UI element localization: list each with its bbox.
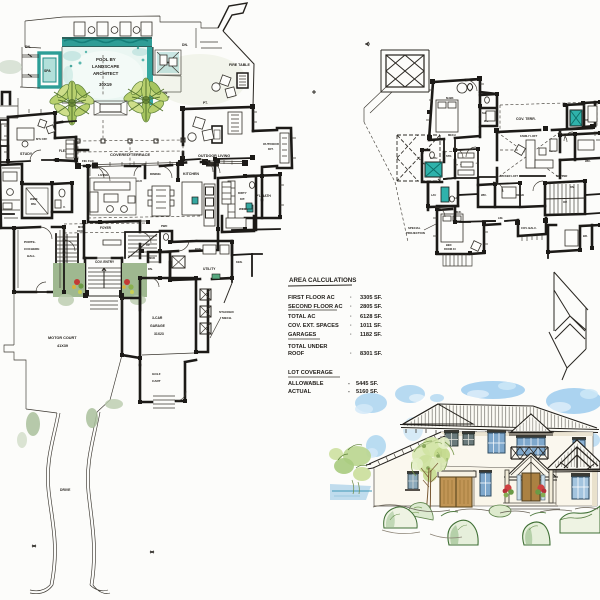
svg-text:1011 SF.: 1011 SF. — [360, 323, 382, 329]
svg-text:PORTE-: PORTE- — [24, 240, 36, 244]
svg-text:AREA CALCULATIONS: AREA CALCULATIONS — [289, 277, 356, 284]
svg-text:COCHERE: COCHERE — [24, 247, 39, 251]
svg-text:KIT.: KIT. — [240, 197, 245, 201]
svg-text:WINE: WINE — [30, 197, 38, 201]
svg-text:OUTDOOR: OUTDOOR — [263, 142, 280, 146]
svg-text:DINING: DINING — [150, 172, 161, 176]
svg-text:MUD: MUD — [78, 225, 84, 229]
svg-text:FAMILY LOFT: FAMILY LOFT — [520, 134, 538, 138]
svg-text:FIN. FLR.: FIN. FLR. — [82, 159, 94, 163]
svg-text:·: · — [350, 295, 352, 301]
svg-text:SPECIAL: SPECIAL — [408, 226, 421, 230]
svg-text:DN.: DN. — [570, 185, 575, 189]
svg-text:DN.: DN. — [182, 43, 188, 47]
svg-text:WICKER LOFT: WICKER LOFT — [500, 174, 518, 178]
svg-text:TOTAL AC: TOTAL AC — [288, 314, 315, 320]
svg-text:DRIVE: DRIVE — [60, 488, 71, 492]
svg-text:8301 SF.: 8301 SF. — [360, 351, 383, 357]
svg-text:COVERED TERRACE: COVERED TERRACE — [110, 152, 151, 157]
svg-text:UP: UP — [146, 243, 150, 247]
svg-text:ROOM: ROOM — [77, 229, 85, 233]
svg-text:UTILITY: UTILITY — [203, 267, 216, 271]
svg-text:TOTAL UNDER: TOTAL UNDER — [288, 344, 327, 350]
svg-text:MECH.: MECH. — [222, 316, 232, 320]
svg-text:KEN.: KEN. — [236, 260, 243, 264]
svg-text:OP.: OP. — [563, 200, 568, 204]
svg-text:RM.: RM. — [31, 202, 36, 206]
svg-text:·: · — [350, 314, 352, 320]
svg-text:-: - — [348, 389, 350, 395]
svg-text:PROJECTION: PROJECTION — [406, 231, 425, 235]
svg-text:POOL BY: POOL BY — [96, 57, 116, 62]
svg-text:41X39: 41X39 — [57, 344, 68, 348]
svg-text:ROOM #3: ROOM #3 — [444, 247, 456, 251]
svg-text:COV. EXT. SPACES: COV. EXT. SPACES — [288, 323, 339, 329]
svg-text:BED: BED — [446, 243, 452, 247]
svg-text:31X23: 31X23 — [154, 332, 164, 336]
svg-text:6128 SF.: 6128 SF. — [360, 314, 383, 320]
svg-text:COV. BALC.: COV. BALC. — [521, 226, 537, 230]
svg-text:LIVING: LIVING — [98, 173, 109, 177]
svg-text:ALLOWABLE: ALLOWABLE — [288, 381, 324, 387]
svg-text:3-CAR: 3-CAR — [152, 316, 163, 320]
svg-text:·: · — [350, 304, 352, 310]
svg-text:FIRST FLOOR AC: FIRST FLOOR AC — [288, 295, 335, 301]
svg-text:KITCHEN: KITCHEN — [183, 172, 199, 176]
svg-text:ACTUAL: ACTUAL — [288, 389, 312, 395]
svg-text:KIT.: KIT. — [268, 147, 274, 151]
svg-text:CART: CART — [152, 379, 161, 383]
svg-text:SECOND FLOOR AC: SECOND FLOOR AC — [288, 304, 343, 310]
svg-text:BR.: BR. — [583, 234, 588, 238]
svg-text:LANDSCAPE: LANDSCAPE — [92, 64, 119, 69]
svg-text:SPA: SPA — [44, 69, 51, 73]
svg-text:LOT COVERAGE: LOT COVERAGE — [288, 370, 333, 376]
svg-text:ARCHITECT: ARCHITECT — [93, 71, 119, 76]
svg-text:·: · — [350, 332, 352, 338]
svg-text:MECH: MECH — [448, 133, 456, 137]
svg-text:M.BR.: M.BR. — [446, 96, 454, 100]
svg-text:GARAGE: GARAGE — [150, 324, 166, 328]
svg-text:2805 SF.: 2805 SF. — [360, 304, 383, 310]
svg-text:PWD: PWD — [161, 224, 167, 228]
svg-text:GARAGES: GARAGES — [288, 332, 317, 338]
svg-text:FIRE TABLE: FIRE TABLE — [229, 63, 250, 67]
svg-text:WIC.: WIC. — [481, 193, 487, 197]
svg-text:COV. ENTRY: COV. ENTRY — [95, 260, 115, 264]
svg-text:STACKED: STACKED — [219, 310, 234, 314]
svg-text:COPPER: COPPER — [556, 174, 567, 178]
svg-text:ROD: ROD — [195, 247, 201, 251]
svg-text:FOYER: FOYER — [100, 226, 112, 230]
svg-text:LAU: LAU — [431, 194, 436, 197]
svg-text:LIN.: LIN. — [498, 216, 503, 220]
svg-text:30X19: 30X19 — [99, 82, 112, 87]
svg-text:DN.: DN. — [148, 267, 153, 271]
svg-text:WINE: WINE — [239, 207, 247, 211]
svg-text:HI-FI: HI-FI — [136, 179, 142, 183]
svg-text:1182 SF.: 1182 SF. — [360, 332, 382, 338]
svg-text:-: - — [348, 381, 350, 387]
svg-text:STO.: STO. — [446, 154, 452, 158]
svg-text:·: · — [350, 323, 352, 329]
svg-text:3305 SF.: 3305 SF. — [360, 295, 383, 301]
svg-text:HALL: HALL — [27, 254, 35, 258]
svg-text:COV. TERR.: COV. TERR. — [516, 117, 536, 121]
svg-text:ROOF: ROOF — [288, 351, 305, 357]
svg-text:MUD: MUD — [149, 256, 155, 260]
svg-text:V.: V. — [63, 205, 66, 209]
svg-text:PT.: PT. — [203, 101, 208, 105]
svg-text:WIC.: WIC. — [585, 159, 591, 163]
svg-text:·: · — [350, 351, 352, 357]
svg-text:M'S OFF: M'S OFF — [36, 137, 48, 141]
svg-text:DESK: DESK — [516, 193, 525, 197]
svg-text:GOLF: GOLF — [152, 372, 161, 376]
svg-text:5445 SF.: 5445 SF. — [356, 381, 379, 387]
svg-text:P'L BATH: P'L BATH — [256, 194, 271, 198]
svg-text:STUDY: STUDY — [20, 152, 33, 156]
svg-text:DIRTY: DIRTY — [238, 191, 247, 195]
svg-text:MOTOR COURT: MOTOR COURT — [48, 336, 77, 340]
svg-text:DN.: DN. — [25, 45, 31, 49]
